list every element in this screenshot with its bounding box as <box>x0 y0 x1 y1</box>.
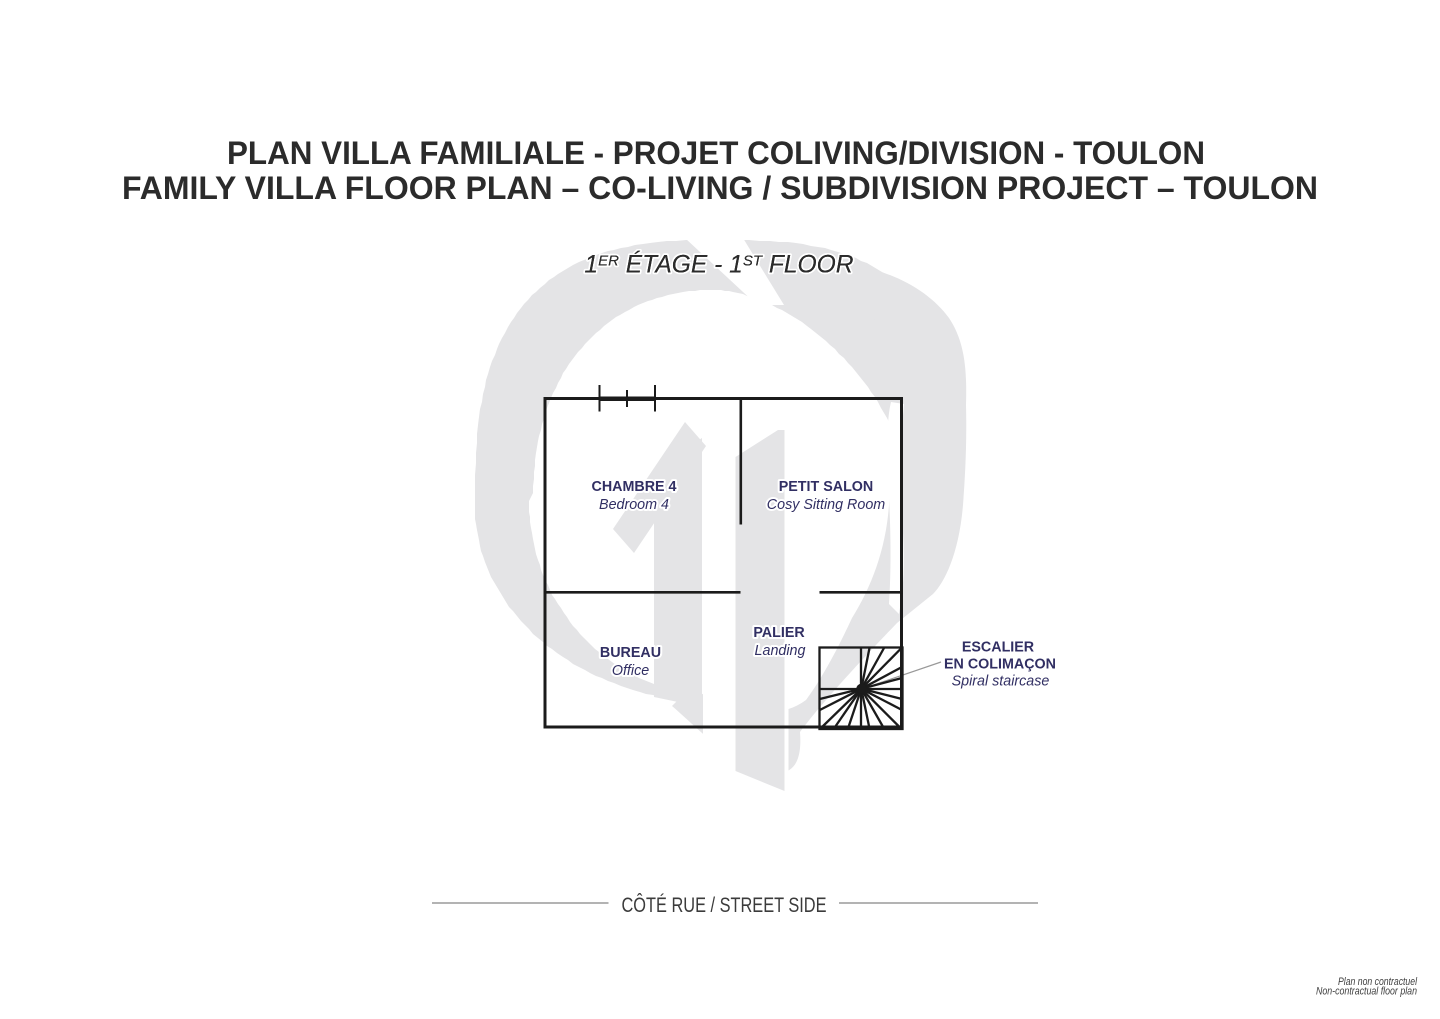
svg-text:PLAN VILLA FAMILIALE - PROJET: PLAN VILLA FAMILIALE - PROJET COLIVING/D… <box>227 135 1205 171</box>
svg-text:Landing: Landing <box>755 643 806 659</box>
svg-text:EN COLIMAÇON: EN COLIMAÇON <box>944 657 1056 673</box>
svg-text:1ER ÉTAGE - 1ST FLOOR: 1ER ÉTAGE - 1ST FLOOR <box>584 252 853 279</box>
svg-text:BUREAU: BUREAU <box>600 645 661 661</box>
svg-text:CHAMBRE 4: CHAMBRE 4 <box>592 479 677 495</box>
svg-text:Spiral staircase: Spiral staircase <box>952 674 1050 690</box>
svg-text:PALIER: PALIER <box>753 625 805 641</box>
svg-text:FAMILY VILLA FLOOR PLAN – CO-L: FAMILY VILLA FLOOR PLAN – CO-LIVING / SU… <box>122 170 1318 206</box>
svg-text:ESCALIER: ESCALIER <box>962 640 1035 656</box>
svg-text:CÔTÉ RUE / STREET SIDE: CÔTÉ RUE / STREET SIDE <box>622 894 827 917</box>
svg-text:Cosy Sitting Room: Cosy Sitting Room <box>767 497 885 513</box>
svg-text:Office: Office <box>612 663 649 679</box>
svg-text:Bedroom 4: Bedroom 4 <box>599 497 669 513</box>
svg-text:Non-contractual floor plan: Non-contractual floor plan <box>1316 986 1417 998</box>
svg-text:PETIT SALON: PETIT SALON <box>779 479 874 495</box>
